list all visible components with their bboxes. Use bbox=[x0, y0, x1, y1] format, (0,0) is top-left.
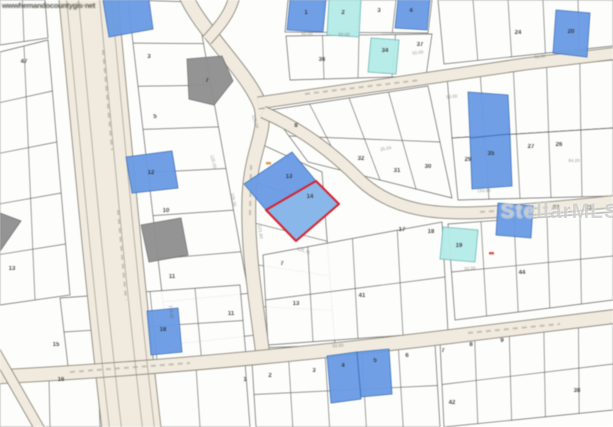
lot-number: 27 bbox=[528, 144, 535, 150]
dimension-label: 110.00 bbox=[477, 188, 491, 193]
lot-number: 41 bbox=[359, 293, 366, 299]
dimension-label: 84.20 bbox=[568, 158, 580, 163]
dimension-label: 50.00 bbox=[464, 266, 476, 272]
lot-number: 42 bbox=[449, 400, 456, 406]
lot-number: 20 bbox=[568, 29, 575, 35]
highlighted-parcel-4 bbox=[395, 0, 430, 30]
dimension-label: 50.00 bbox=[301, 31, 313, 36]
lot-number: 29 bbox=[465, 157, 472, 163]
plat-map-image[interactable]: 50.0050.00125.0425.04121.6050.00110.0012… bbox=[0, 0, 613, 427]
highlighted-parcel-5 bbox=[357, 349, 392, 397]
map-speck bbox=[266, 162, 271, 164]
dimension-label: 50.00 bbox=[338, 32, 350, 37]
lot-number: 18 bbox=[160, 327, 167, 333]
lot-number: 30 bbox=[425, 164, 432, 170]
lot-number: 36 bbox=[319, 57, 326, 63]
lot-number: 26 bbox=[556, 142, 563, 148]
dimension-label: 50.00 bbox=[332, 342, 344, 348]
highlighted-parcel bbox=[141, 218, 188, 262]
highlighted-parcel-34 bbox=[368, 38, 399, 74]
highlighted-parcel-35 bbox=[470, 134, 512, 189]
highlighted-parcel-4 bbox=[327, 352, 361, 403]
lot-number: 21 bbox=[586, 205, 593, 211]
lot-number: 34 bbox=[382, 48, 389, 54]
lot-number: 11 bbox=[228, 311, 235, 317]
plat-map-svg: 50.0050.00125.0425.04121.6050.00110.0012… bbox=[0, 0, 613, 427]
highlighted-parcel bbox=[496, 203, 533, 238]
lot-number: 15 bbox=[53, 342, 60, 348]
lot-number: 18 bbox=[428, 229, 435, 235]
lot-number: 38 bbox=[574, 388, 581, 394]
highlighted-parcel-1 bbox=[287, 0, 326, 32]
lot-number: 47 bbox=[21, 59, 28, 65]
lot-number: 23 bbox=[553, 205, 560, 211]
lot-number: 13 bbox=[293, 301, 300, 307]
lot-number: 11 bbox=[169, 274, 176, 280]
lot-number: 44 bbox=[519, 270, 526, 276]
highlighted-parcel bbox=[468, 92, 510, 138]
lot-number: 13 bbox=[286, 174, 293, 180]
lot-number: 31 bbox=[394, 168, 401, 174]
map-canvas: 50.0050.00125.0425.04121.6050.00110.0012… bbox=[0, 0, 613, 427]
lot-number: 14 bbox=[307, 194, 314, 200]
lot-number: 24 bbox=[515, 30, 522, 36]
map-speck bbox=[489, 252, 494, 254]
lot-number: 32 bbox=[358, 156, 365, 162]
lot-number: 19 bbox=[456, 243, 463, 249]
lot-number: 13 bbox=[9, 266, 16, 272]
lot-number: 17 bbox=[399, 227, 406, 233]
lot-number: 35 bbox=[488, 151, 495, 157]
lot-number: 12 bbox=[148, 170, 155, 176]
lot-number: 37 bbox=[417, 42, 424, 48]
lot-number: 16 bbox=[58, 377, 65, 383]
lot-number: 10 bbox=[163, 208, 170, 214]
